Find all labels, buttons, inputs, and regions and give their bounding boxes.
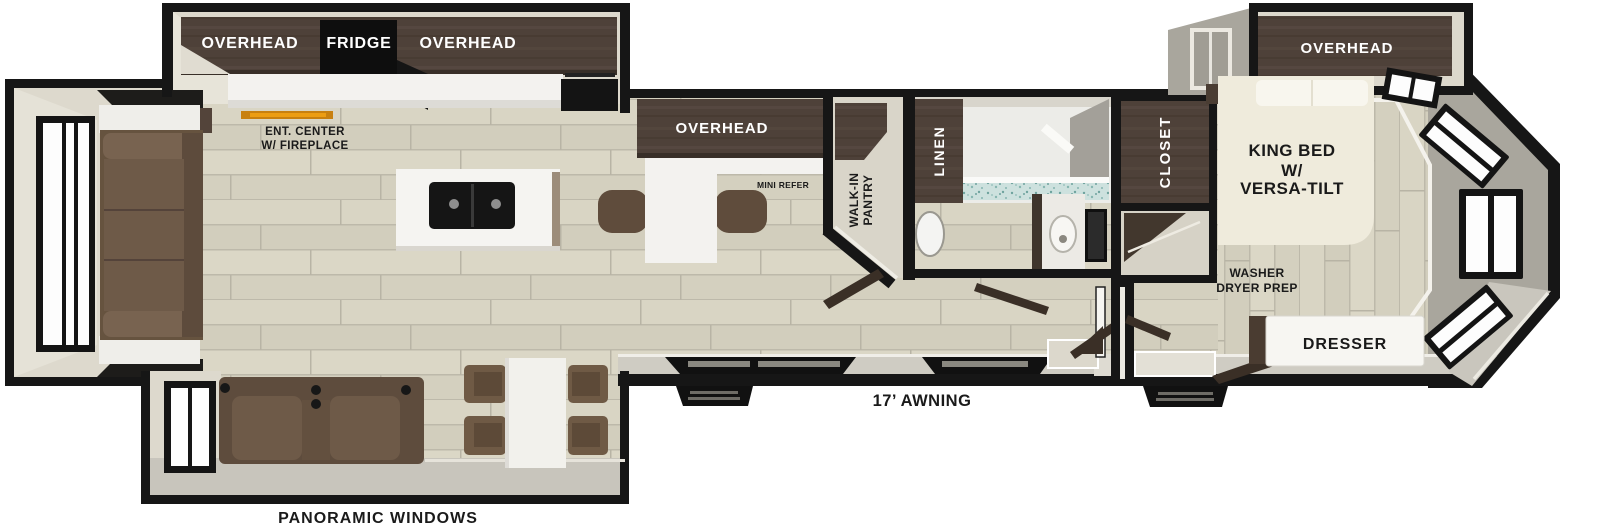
svg-text:W/ FIREPLACE: W/ FIREPLACE [261, 140, 348, 152]
svg-text:W/: W/ [1281, 161, 1303, 180]
svg-text:KING BED: KING BED [1248, 141, 1335, 160]
svg-text:FRIDGE: FRIDGE [326, 35, 391, 52]
svg-text:DRYER PREP: DRYER PREP [1216, 281, 1298, 295]
svg-text:OVERHEAD: OVERHEAD [675, 120, 768, 137]
svg-text:OVERHEAD: OVERHEAD [1300, 40, 1393, 57]
svg-text:VERSA-TILT: VERSA-TILT [1240, 179, 1344, 198]
svg-text:PANORAMIC WINDOWS: PANORAMIC WINDOWS [278, 510, 478, 524]
svg-text:OVERHEAD: OVERHEAD [201, 35, 298, 52]
svg-text:MINI REFER: MINI REFER [757, 180, 809, 190]
svg-text:CLOSET: CLOSET [1157, 116, 1174, 189]
svg-text:ENT. CENTER: ENT. CENTER [265, 126, 345, 138]
svg-text:17’ AWNING: 17’ AWNING [873, 392, 972, 410]
svg-text:WASHER: WASHER [1229, 266, 1284, 280]
svg-text:OVERHEAD: OVERHEAD [419, 35, 516, 52]
svg-text:DRESSER: DRESSER [1303, 336, 1387, 353]
svg-text:WALK-INPANTRY: WALK-INPANTRY [847, 173, 875, 228]
svg-text:LINEN: LINEN [931, 126, 947, 177]
